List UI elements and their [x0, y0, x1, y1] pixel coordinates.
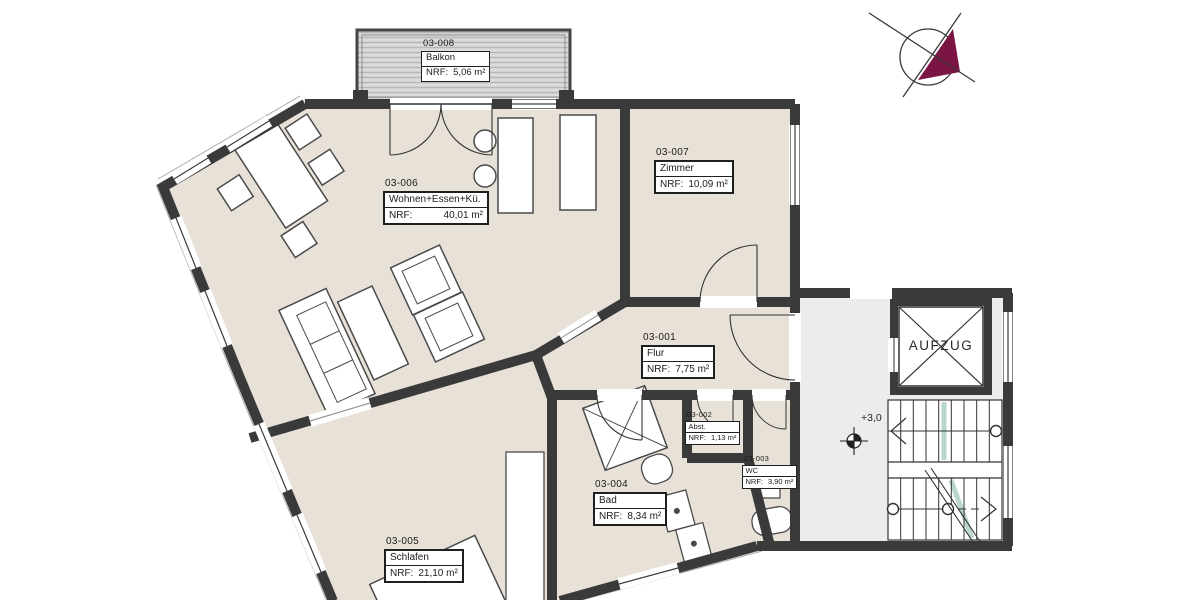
room-number: 03-006	[385, 178, 489, 190]
room-info-box: WC NRF: 3,90 m²	[742, 465, 797, 489]
room-label-abstellraum: 03-002 Abst. NRF: 1,13 m²	[685, 411, 740, 445]
room-name: Zimmer	[656, 162, 732, 177]
north-arrow-icon	[869, 13, 975, 97]
room-label-schlafen: 03-005 Schlafen NRF: 21,10 m²	[384, 536, 464, 583]
room-area: NRF: 40,01 m²	[385, 207, 487, 223]
nrf-value: 1,13 m²	[711, 434, 736, 443]
room-info-box: Schlafen NRF: 21,10 m²	[384, 549, 464, 583]
room-area: NRF: 1,13 m²	[686, 432, 739, 444]
room-area: NRF: 8,34 m²	[595, 508, 665, 524]
room-number: 03-003	[744, 455, 797, 464]
room-label-bad: 03-004 Bad NRF: 8,34 m²	[593, 479, 667, 526]
nrf-label: NRF:	[599, 511, 622, 523]
room-label-wc: 03-003 WC NRF: 3,90 m²	[742, 455, 797, 489]
nrf-value: 40,01 m²	[444, 210, 483, 222]
nrf-label: NRF:	[647, 364, 670, 376]
nrf-label: NRF:	[746, 478, 764, 487]
room-area: NRF: 10,09 m²	[656, 176, 732, 192]
room-name: Wohnen+Essen+Kü.	[385, 193, 487, 208]
room-number: 03-002	[687, 411, 740, 420]
floor-plan-page: 03-008 Balkon NRF: 5,06 m² 03-006 Wohnen…	[0, 0, 1200, 600]
nrf-value: 21,10 m²	[418, 568, 457, 580]
nrf-label: NRF:	[660, 179, 683, 191]
room-name: Balkon	[422, 52, 489, 66]
room-label-flur: 03-001 Flur NRF: 7,75 m²	[641, 332, 715, 379]
room-label-living: 03-006 Wohnen+Essen+Kü. NRF: 40,01 m²	[383, 178, 489, 225]
room-label-zimmer: 03-007 Zimmer NRF: 10,09 m²	[654, 147, 734, 194]
nrf-label: NRF:	[390, 568, 413, 580]
room-info-box: Abst. NRF: 1,13 m²	[685, 421, 740, 445]
room-name: Schlafen	[386, 551, 462, 566]
wardrobe	[506, 452, 544, 600]
room-name: Flur	[643, 347, 713, 362]
room-number: 03-004	[595, 479, 667, 491]
room-info-box: Wohnen+Essen+Kü. NRF: 40,01 m²	[383, 191, 489, 225]
elevator-label: AUFZUG	[897, 338, 985, 353]
room-number: 03-008	[423, 39, 490, 50]
level-marker-label: +3,0	[861, 412, 882, 424]
nrf-label: NRF:	[689, 434, 707, 443]
nrf-label: NRF:	[389, 210, 412, 222]
room-info-box: Bad NRF: 8,34 m²	[593, 492, 667, 526]
room-area: NRF: 5,06 m²	[422, 66, 489, 81]
nrf-value: 3,90 m²	[768, 478, 793, 487]
nrf-label: NRF:	[426, 68, 448, 79]
room-label-balcony: 03-008 Balkon NRF: 5,06 m²	[421, 39, 490, 82]
room-number: 03-005	[386, 536, 464, 548]
room-number: 03-007	[656, 147, 734, 159]
kitchen-cabinet	[560, 115, 596, 210]
nrf-value: 7,75 m²	[675, 364, 709, 376]
nrf-value: 5,06 m²	[453, 68, 485, 79]
stairs	[888, 400, 1003, 545]
nrf-value: 10,09 m²	[688, 179, 727, 191]
room-area: NRF: 3,90 m²	[743, 476, 796, 488]
kitchen-sink-bowl	[474, 130, 496, 152]
room-info-box: Zimmer NRF: 10,09 m²	[654, 160, 734, 194]
room-area: NRF: 21,10 m²	[386, 565, 462, 581]
kitchen-counter	[498, 118, 533, 213]
room-info-box: Flur NRF: 7,75 m²	[641, 345, 715, 379]
room-name: Bad	[595, 494, 665, 509]
room-info-box: Balkon NRF: 5,06 m²	[421, 51, 490, 82]
room-name: Abst.	[686, 422, 739, 433]
room-area: NRF: 7,75 m²	[643, 361, 713, 377]
room-number: 03-001	[643, 332, 715, 344]
room-name: WC	[743, 466, 796, 477]
nrf-value: 8,34 m²	[627, 511, 661, 523]
